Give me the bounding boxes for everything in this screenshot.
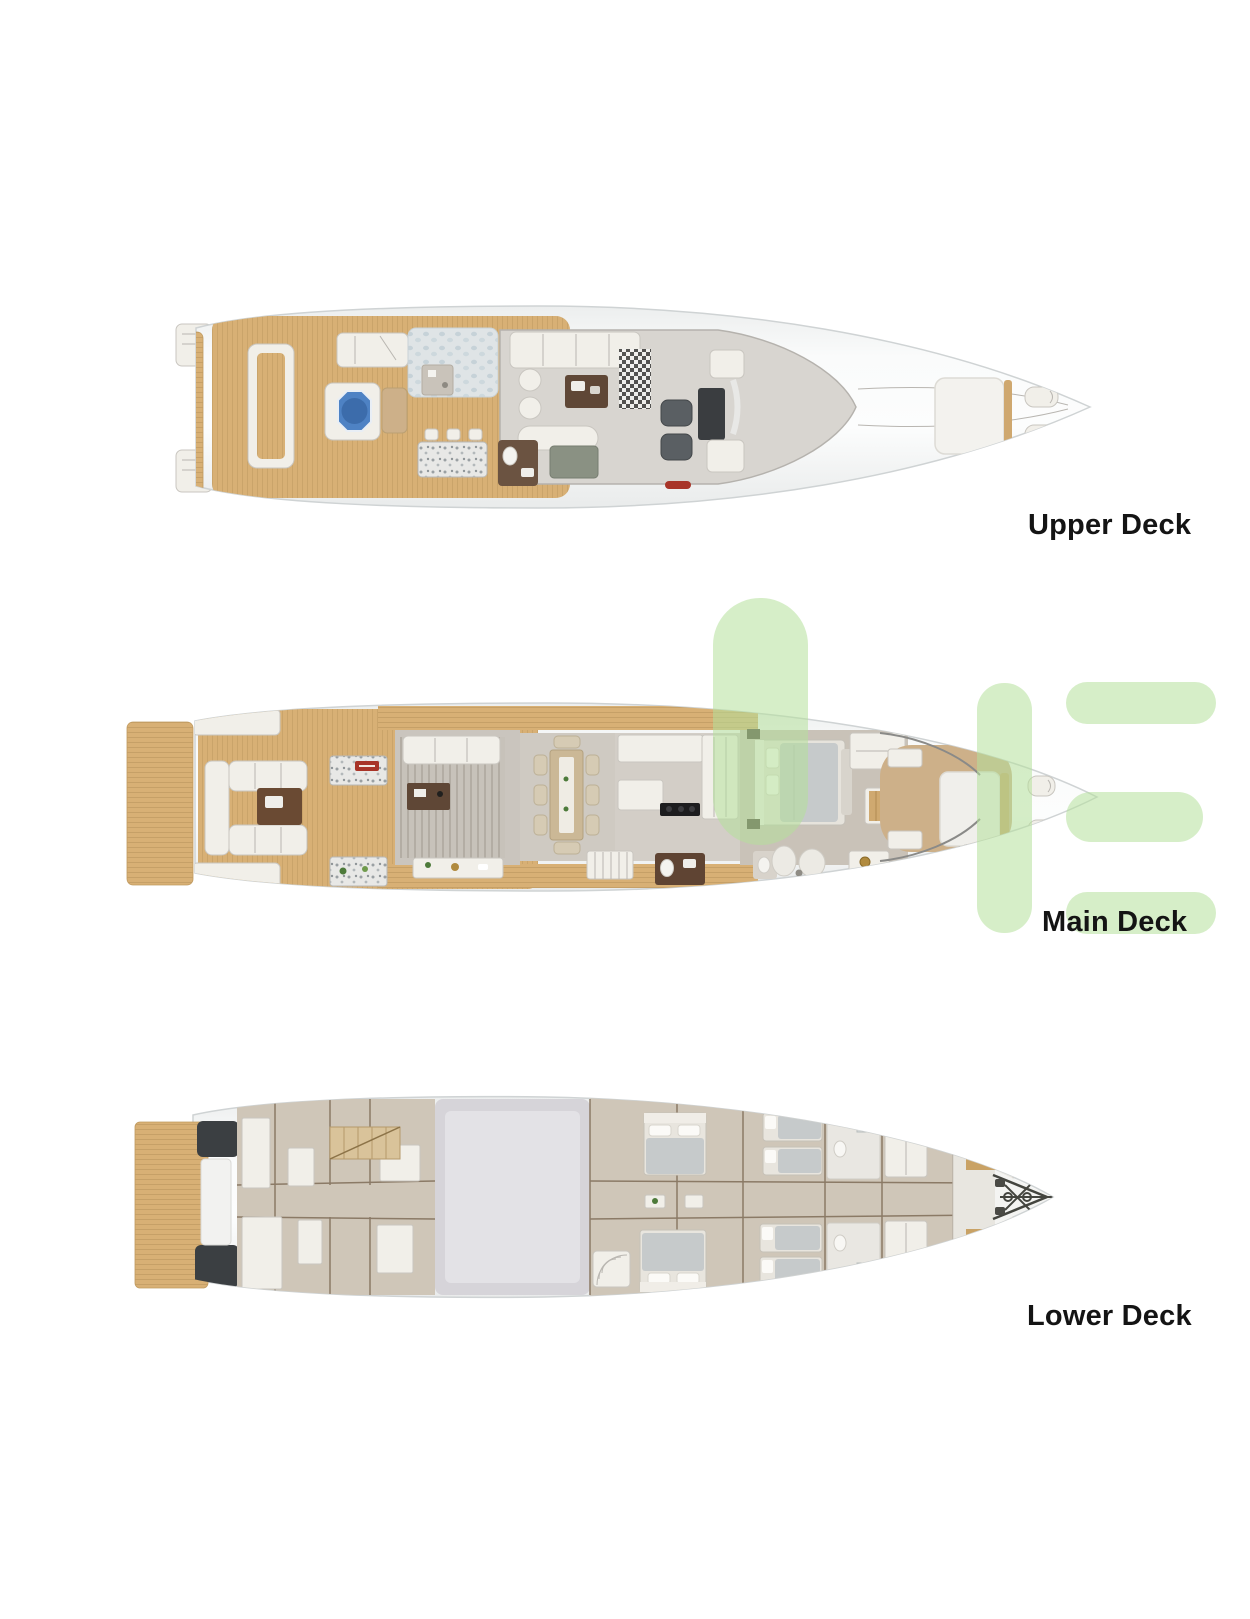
aft-bench [248,344,294,468]
stairs-landing [593,1251,630,1287]
main-deck-plan [127,703,1097,891]
helm-chair [661,400,692,426]
bar-counter [418,429,487,477]
dining-area [520,733,615,861]
vanity [963,1243,1013,1261]
lounge-chair [519,397,541,419]
helm-chair [661,434,692,460]
watermark-stroke [977,683,1032,933]
watermark-stroke [1066,682,1216,724]
side-deck-port [378,706,758,730]
crew-stairs [330,1127,400,1159]
side-bench [710,350,744,378]
upper-deck-label: Upper Deck [1028,509,1191,542]
sun-lounger [337,333,408,367]
day-head [655,853,705,885]
guest-bathroom-starboard [827,1223,880,1291]
settee-cabinet [550,446,598,478]
life-ring-sign [665,481,691,489]
transom-wedge [197,1121,239,1157]
beach-club [201,1159,231,1245]
engine-room [435,1099,590,1295]
bow-sunpad [935,378,1004,454]
galley-island [618,780,663,810]
cleat [1038,364,1050,368]
lower-deck-label: Lower Deck [1027,1300,1192,1333]
deck-plans-figure [0,0,1250,1619]
crew-quarters [237,1099,435,1295]
bow-wedge [966,1139,1008,1170]
boarding-platform [192,863,280,889]
double-cabin-aft-starboard [640,1230,706,1292]
side-bench [707,440,744,472]
bath-pod [799,849,825,877]
wet-bar-cabinet [422,365,453,395]
grill-counter [330,756,387,785]
bar-stools [425,429,482,440]
guest-cabins [590,1097,1053,1297]
jacuzzi [325,383,380,440]
checker-rug [619,349,651,409]
main-deck-label: Main Deck [1042,906,1187,939]
lounger-pad [382,388,407,433]
day-head [498,440,538,486]
double-cabin-aft-port [644,1113,706,1175]
watermark-stroke [1066,792,1203,842]
cleat [1038,858,1050,862]
anchor-gear [993,1170,1053,1225]
coffee-table [565,375,608,408]
transom-wedge [195,1245,239,1287]
cleat [1038,460,1050,464]
swim-platform [127,722,193,885]
lounge-chair [519,369,541,391]
yacht-deck-plans-page: Upper Deck Main Deck Lower Deck [0,0,1250,1619]
upper-deck-plan [136,306,1090,508]
boarding-platform [192,709,280,735]
bow-wedge [966,1229,1008,1260]
tv-cabinet [407,783,450,810]
cleat [1036,751,1048,755]
bath-pod [772,846,796,876]
planter-counter [330,857,387,886]
stairs-down [587,851,633,879]
helm-console [698,388,725,440]
guest-bathroom-port [827,1107,880,1179]
salon-sofa [403,736,500,764]
lower-deck-plan [135,1097,1053,1298]
watermark-stroke [713,598,808,845]
